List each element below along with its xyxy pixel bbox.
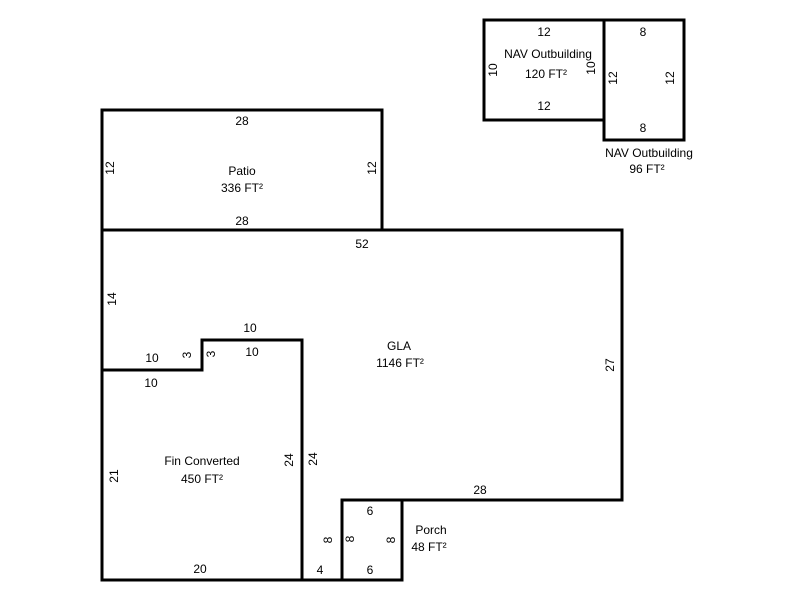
porch-name-label: 48 FT² [411, 540, 446, 554]
gla-dimension-label: 24 [306, 452, 320, 466]
gla-outline [102, 230, 622, 580]
porch-name-label: Porch [415, 523, 446, 537]
fin-converted-name-label: 450 FT² [181, 472, 223, 486]
nav-outbuilding-96-dimension-label: 12 [663, 71, 677, 85]
fin-converted-dimension-label: 10 [245, 345, 259, 359]
nav-outbuilding-120-dimension-label: 12 [537, 99, 551, 113]
gla-dimension-label: 4 [317, 563, 324, 577]
fin-converted-dimension-label: 21 [107, 469, 121, 483]
fin-converted-dimension-label: 10 [144, 376, 158, 390]
gla-name-label: 1146 FT² [376, 356, 424, 370]
fin-converted-dimension-label: 20 [193, 562, 207, 576]
nav-outbuilding-120-dimension-label: 10 [486, 63, 500, 77]
floor-plan-svg: 28121228Patio336 FT²52141031024272884GLA… [0, 0, 800, 600]
nav-outbuilding-96-dimension-label: 8 [640, 25, 647, 39]
porch-dimension-label: 6 [367, 563, 374, 577]
patio-dimension-label: 28 [235, 214, 249, 228]
nav-outbuilding-96-name-label: 96 FT² [629, 162, 664, 176]
gla-dimension-label: 52 [355, 237, 369, 251]
patio-dimension-label: 12 [103, 161, 117, 175]
gla-dimension-label: 10 [145, 351, 159, 365]
patio-name-label: 336 FT² [221, 181, 263, 195]
gla-name-label: GLA [387, 339, 411, 353]
patio-dimension-label: 28 [235, 114, 249, 128]
porch-dimension-label: 6 [367, 504, 374, 518]
fin-converted-dimension-label: 3 [204, 350, 218, 357]
nav-outbuilding-96-dimension-label: 12 [606, 71, 620, 85]
patio-dimension-label: 12 [365, 161, 379, 175]
porch-dimension-label: 8 [343, 535, 357, 542]
porch-dimension-label: 8 [384, 536, 398, 543]
gla-dimension-label: 8 [321, 536, 335, 543]
nav-outbuilding-120-dimension-label: 12 [537, 25, 551, 39]
gla-dimension-label: 10 [243, 321, 257, 335]
patio-name-label: Patio [228, 164, 256, 178]
gla-dimension-label: 14 [105, 292, 119, 306]
gla-dimension-label: 27 [603, 358, 617, 372]
fin-converted-dimension-label: 24 [282, 453, 296, 467]
floor-plan-sketch: 28121228Patio336 FT²52141031024272884GLA… [0, 0, 800, 600]
nav-outbuilding-120-dimension-label: 10 [584, 61, 598, 75]
nav-outbuilding-96-dimension-label: 8 [640, 121, 647, 135]
nav-outbuilding-96-name-label: NAV Outbuilding [605, 146, 693, 160]
fin-converted-name-label: Fin Converted [164, 454, 239, 468]
nav-outbuilding-120-name-label: NAV Outbuilding [504, 47, 592, 61]
gla-dimension-label: 3 [180, 351, 194, 358]
gla-dimension-label: 28 [473, 483, 487, 497]
nav-outbuilding-120-name-label: 120 FT² [525, 67, 567, 81]
